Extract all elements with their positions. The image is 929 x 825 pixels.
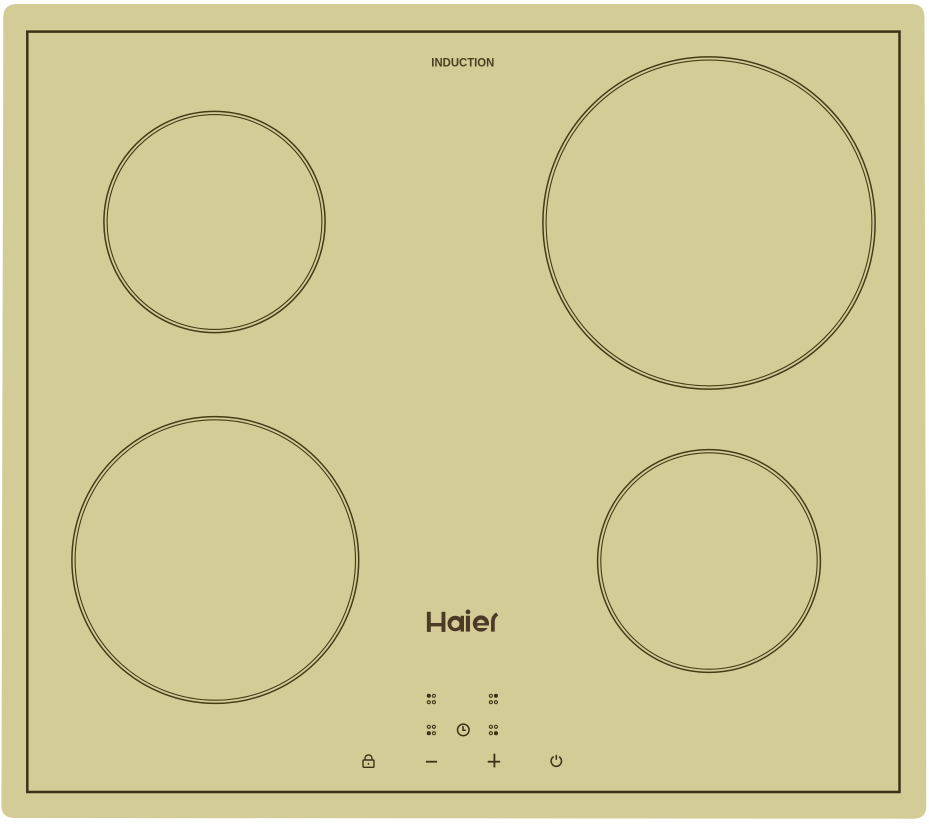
svg-text:INDUCTION: INDUCTION (431, 57, 494, 69)
